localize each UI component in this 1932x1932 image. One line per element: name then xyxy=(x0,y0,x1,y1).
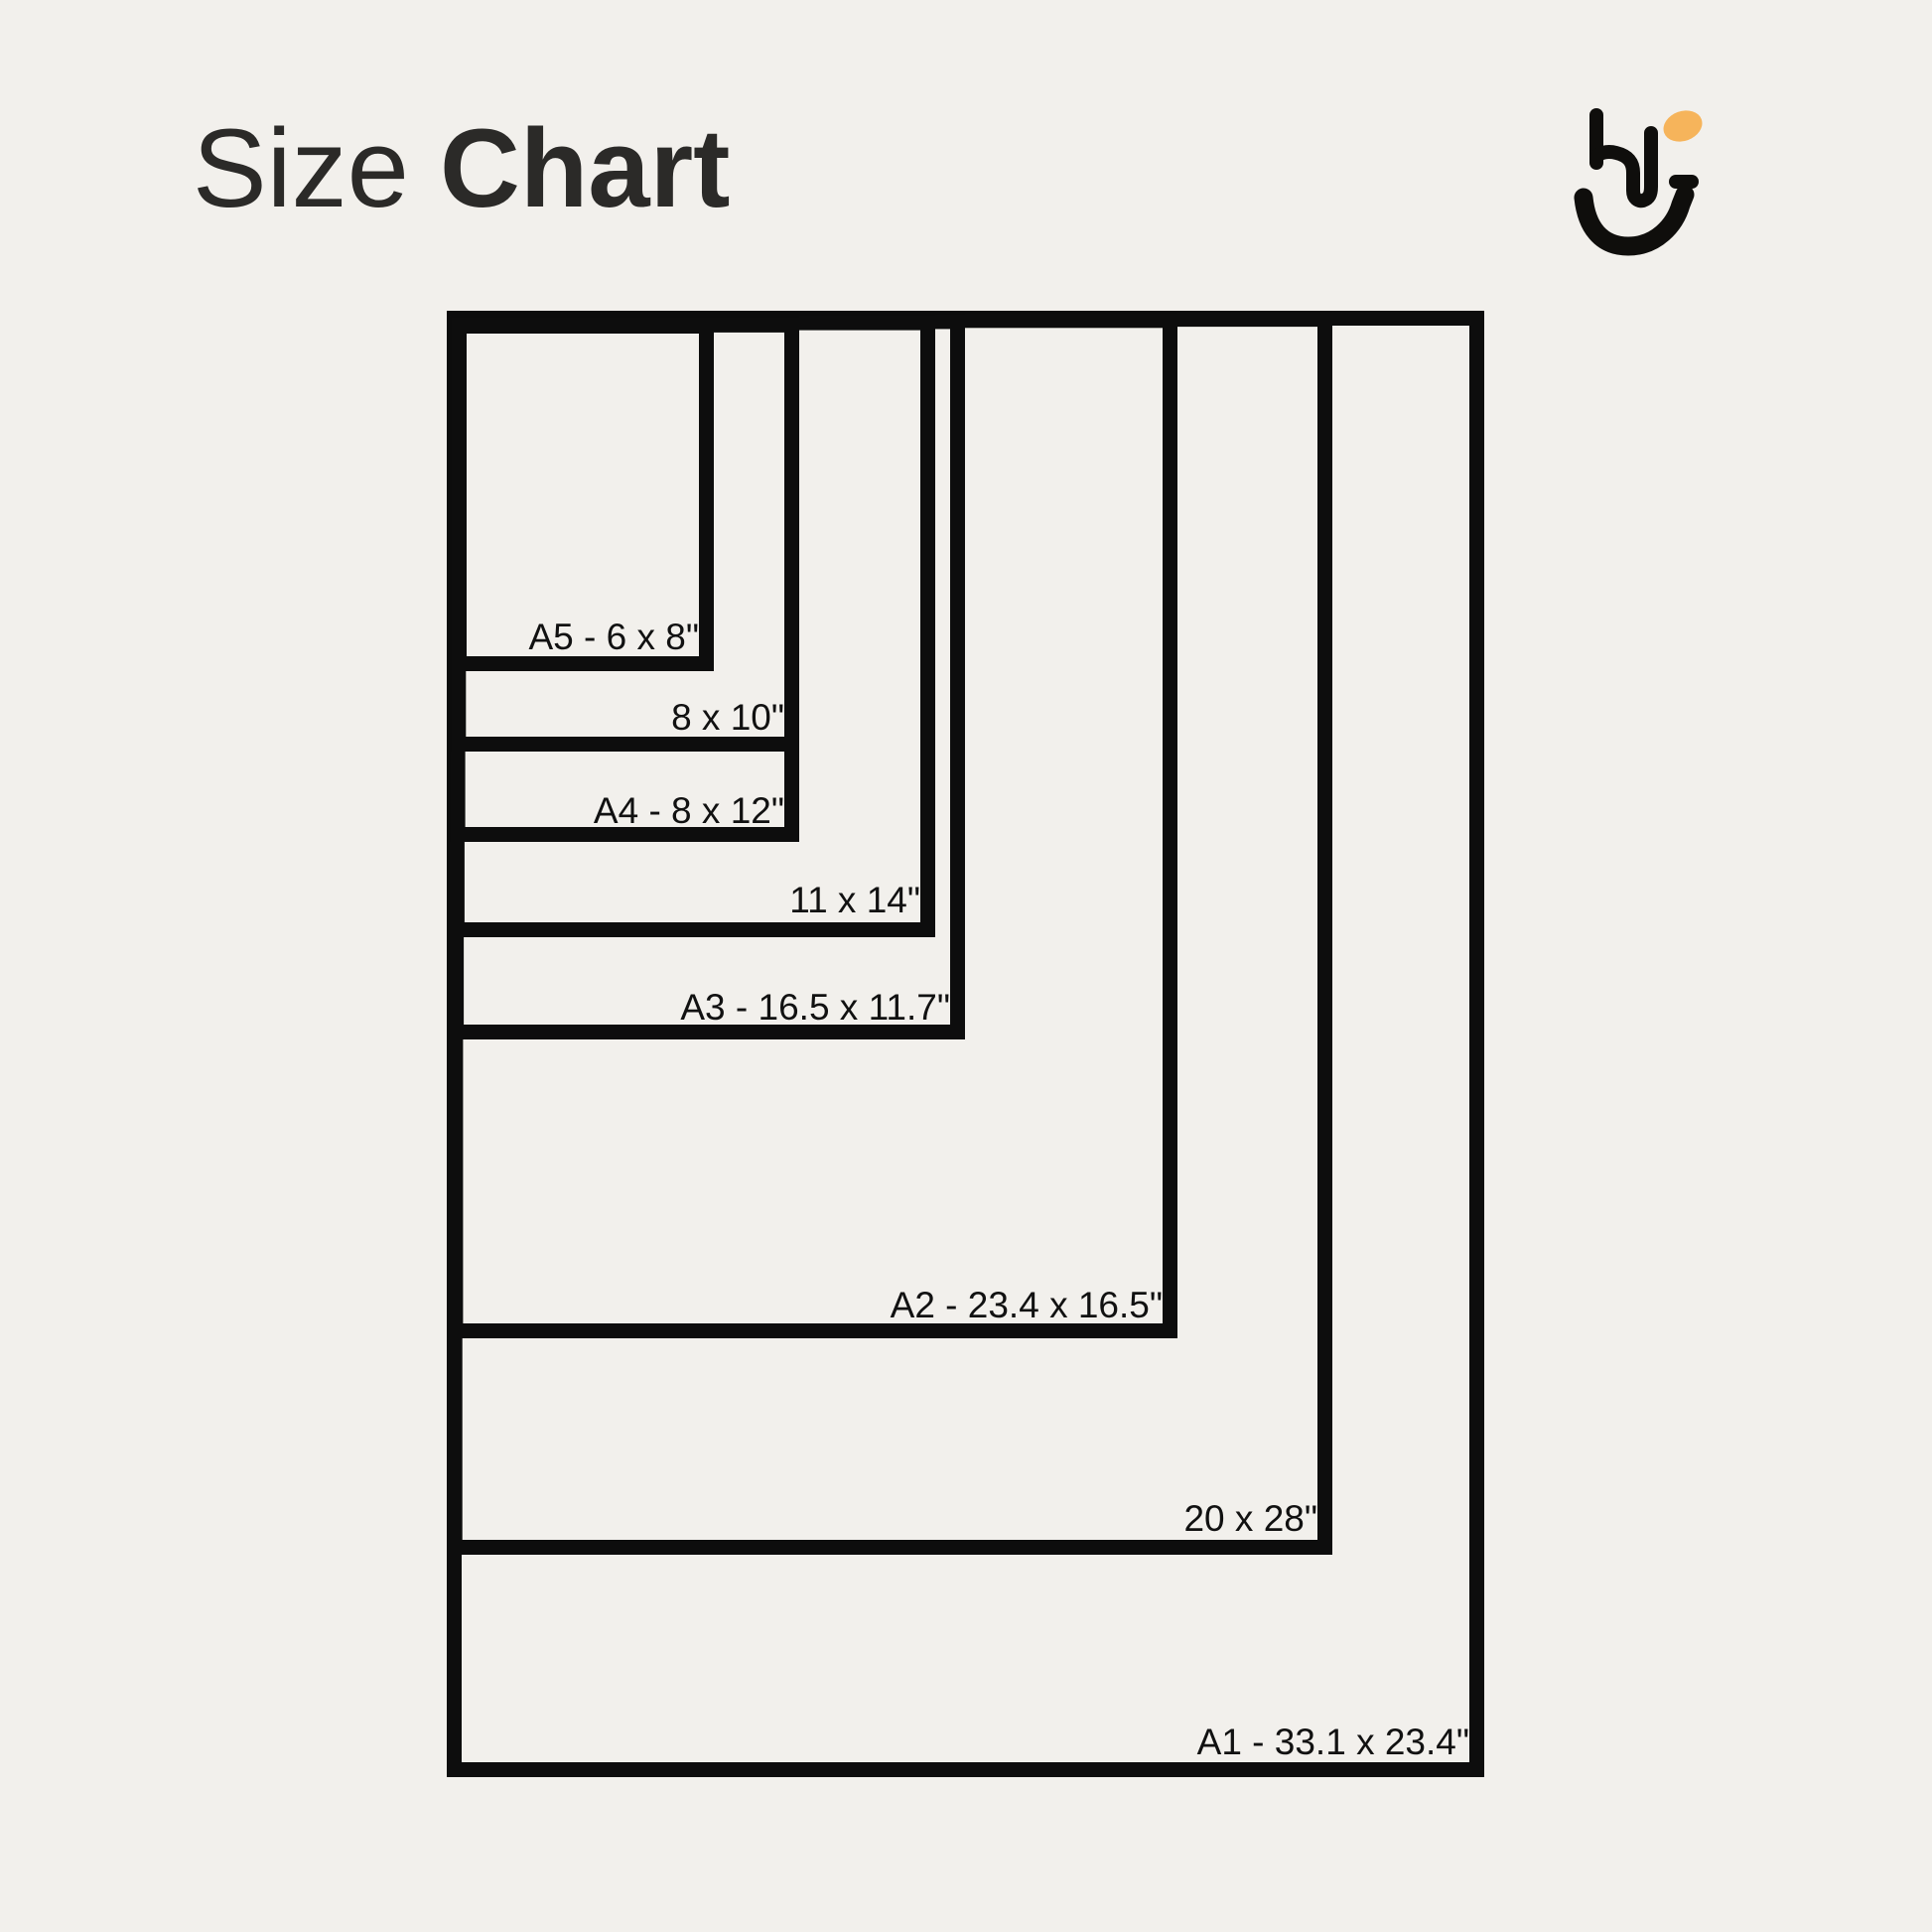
svg-text:Size Chart: Size Chart xyxy=(193,106,730,230)
svg-text:A3 - 16.5 x 11.7": A3 - 16.5 x 11.7" xyxy=(680,987,950,1028)
svg-text:20 x 28": 20 x 28" xyxy=(1183,1498,1317,1539)
svg-text:8 x 10": 8 x 10" xyxy=(671,697,784,738)
svg-text:11 x 14": 11 x 14" xyxy=(789,880,920,920)
svg-text:A2 - 23.4 x 16.5": A2 - 23.4 x 16.5" xyxy=(891,1285,1163,1325)
svg-text:A5 - 6 x 8": A5 - 6 x 8" xyxy=(529,617,700,657)
svg-text:A1 - 33.1 x 23.4": A1 - 33.1 x 23.4" xyxy=(1197,1722,1469,1762)
svg-text:A4 - 8 x 12": A4 - 8 x 12" xyxy=(594,790,784,831)
